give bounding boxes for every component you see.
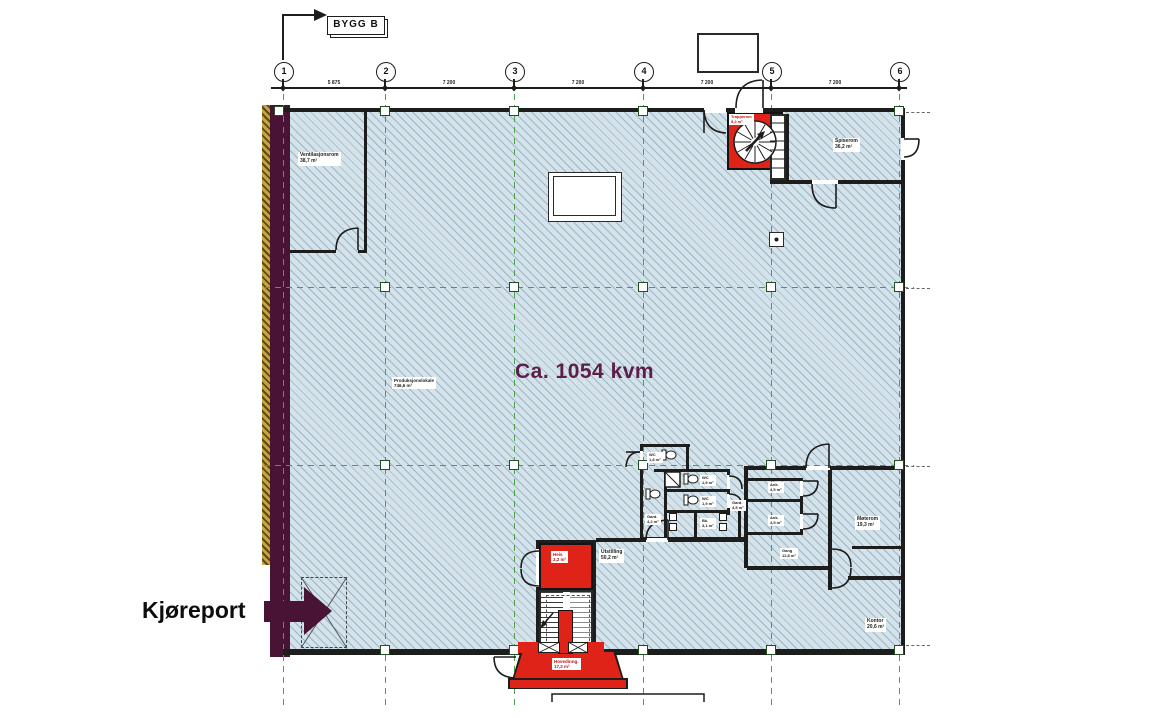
wall-utstilling-top [596, 538, 745, 542]
wall-wc [664, 489, 730, 492]
grid-line-4 [643, 94, 644, 706]
yellow-wall-strip [262, 105, 270, 565]
locker [719, 523, 727, 531]
column-marker [894, 106, 904, 116]
annotation-arrow-icon [314, 9, 327, 21]
door-gap-right-wall [901, 138, 905, 160]
dimension-label-2-3: 7 200 [434, 80, 464, 86]
room-label-ank-top: Ank. 4,5 m² [768, 482, 784, 493]
dimension-label-5-6: 7 200 [820, 80, 850, 86]
highlighted-left-wall [270, 105, 290, 657]
room-label-heis: Heis 3,2 m² [551, 551, 568, 563]
annotation-line-vertical [282, 14, 284, 60]
floor-plan: BYGG B 1 2 3 4 5 6 5 875 7 200 7 200 7 2… [0, 0, 1168, 718]
duct-shaft [770, 114, 786, 180]
room-label-wc-top: WC 1,8 m² [647, 452, 663, 463]
grid-bubble-3: 3 [505, 62, 525, 82]
kjoreport-arrow-shaft [264, 601, 304, 622]
door-gap-ank1 [800, 481, 803, 496]
entrance-door-right [568, 642, 588, 653]
door-gap-hall [704, 108, 726, 113]
annotation-line-horizontal [282, 14, 316, 16]
grid-tick [282, 79, 284, 88]
wall-wc [686, 444, 689, 472]
entrance-post [518, 642, 538, 653]
total-area-label: Ca. 1054 kvm [515, 360, 654, 384]
door-gap-wc [727, 475, 730, 489]
column-marker [380, 460, 390, 470]
wall-gang-bottom [747, 566, 831, 570]
column-marker [894, 460, 904, 470]
entrance-post [560, 642, 568, 653]
column-marker [766, 282, 776, 292]
locker [669, 513, 677, 521]
column-marker [638, 282, 648, 292]
room-label-bk: Bk. 3,1 m² [700, 518, 716, 529]
room-label-wc-mid: WC 1,9 m² [700, 475, 716, 486]
grid-line-3 [514, 94, 515, 706]
room-label-gard-right: Gard. 4,5 m² [730, 500, 746, 511]
wall-ank [747, 499, 803, 502]
column-marker [638, 645, 648, 655]
grid-bubble-1: 1 [274, 62, 294, 82]
grid-bubble-5: 5 [762, 62, 782, 82]
grid-tick [642, 79, 644, 88]
wall-wc [664, 469, 667, 540]
column-box [769, 232, 784, 247]
dimension-label-3-4: 7 200 [563, 80, 593, 86]
door-gap-office [806, 466, 830, 470]
door-arc-top-entrance [736, 80, 762, 108]
building-label: BYGG B [327, 16, 385, 35]
wall-stairblock-right [593, 540, 596, 652]
column-marker [638, 106, 648, 116]
wall-ventilasjonsrom-bottom [290, 250, 336, 253]
wall-spiserom-left [786, 114, 789, 184]
exterior-structure [697, 33, 759, 73]
locker [719, 513, 727, 521]
wall-ventilasjonsrom-stub [358, 250, 367, 253]
wall-ank [747, 532, 803, 535]
door-gap-top-entrance [735, 108, 763, 113]
room-label-trapperom: Trapperom 5,2 m² [729, 114, 754, 125]
dimension-label-4-5: 7 200 [692, 80, 722, 86]
room-label-ank-low: Ank. 4,5 m² [768, 515, 784, 526]
wall-ank [747, 478, 803, 481]
entrance-post [588, 642, 604, 653]
room-label-gang: Gang 12,8 m² [780, 548, 798, 559]
grid-line-h1 [264, 287, 914, 288]
door-gap-utstilling [646, 538, 668, 542]
grid-tick [770, 79, 772, 88]
door-gap-spiserom [812, 180, 838, 184]
column-marker [380, 106, 390, 116]
door-gap-lift-room [536, 549, 539, 587]
room-label-wc-low: WC 1,9 m² [700, 496, 716, 507]
grid-bubble-4: 4 [634, 62, 654, 82]
wall-ventilasjonsrom-right [364, 112, 367, 252]
column-marker [766, 645, 776, 655]
door-gap-ank2 [800, 514, 803, 529]
exterior-step [552, 694, 704, 702]
room-label-ventilasjonsrom: Ventilasjonsrom 38,7 m² [298, 152, 341, 166]
column-marker [274, 106, 284, 116]
entrance-base [510, 680, 626, 688]
wall-wc [640, 444, 690, 447]
wall-top [283, 108, 905, 112]
floor-opening-inner [553, 176, 616, 216]
grid-bubble-6: 6 [890, 62, 910, 82]
entrance-door-left [538, 642, 560, 653]
room-label-gard-left: Gard. 4,2 m² [645, 514, 661, 525]
room-label-kontor: Kontor 20,6 m² [865, 618, 886, 632]
ref-stub [906, 466, 930, 467]
column-marker [766, 460, 776, 470]
kjoreport-label: Kjøreport [142, 597, 246, 624]
wall-office-left [744, 466, 748, 568]
wall-moterom-bottom [852, 546, 902, 549]
kjoreport-arrow-icon [304, 587, 332, 635]
locker [669, 523, 677, 531]
column-marker [380, 282, 390, 292]
grid-line-2 [385, 94, 386, 706]
column-marker [509, 106, 519, 116]
wall-moterom-left [828, 466, 832, 548]
room-label-utstilling: Utstilling 50,2 m² [599, 549, 624, 563]
column-marker [380, 645, 390, 655]
column-marker [509, 282, 519, 292]
column-marker [894, 645, 904, 655]
grid-tick [384, 79, 386, 88]
room-label-produksjonslokale: Produksjonslokale 746,6 m² [392, 377, 436, 389]
column-marker [509, 460, 519, 470]
wall-wc [694, 510, 697, 540]
door-arc-entrance-left [494, 657, 515, 678]
ref-stub [906, 288, 930, 289]
ref-stub [906, 112, 930, 113]
room-label-hovedinngang: Hovedinng. 17,2 m² [552, 658, 581, 670]
wall-right [901, 108, 905, 655]
grid-line-5 [771, 94, 772, 706]
ref-stub [906, 645, 930, 646]
dimension-line [271, 87, 907, 89]
wall-wc [738, 510, 741, 540]
column-marker [894, 282, 904, 292]
grid-line-6 [899, 94, 900, 706]
grid-tick [513, 79, 515, 88]
wall-kontor-top [848, 576, 902, 580]
grid-tick [898, 79, 900, 88]
grid-bubble-2: 2 [376, 62, 396, 82]
room-label-spiserom: Spiserom 36,2 m² [833, 138, 860, 152]
wall-door-cluster [828, 548, 832, 590]
room-label-moterom: Møterom 19,3 m² [855, 516, 880, 530]
dimension-label-1-2: 5 875 [319, 80, 349, 86]
door-arc-right-exterior [904, 139, 919, 157]
